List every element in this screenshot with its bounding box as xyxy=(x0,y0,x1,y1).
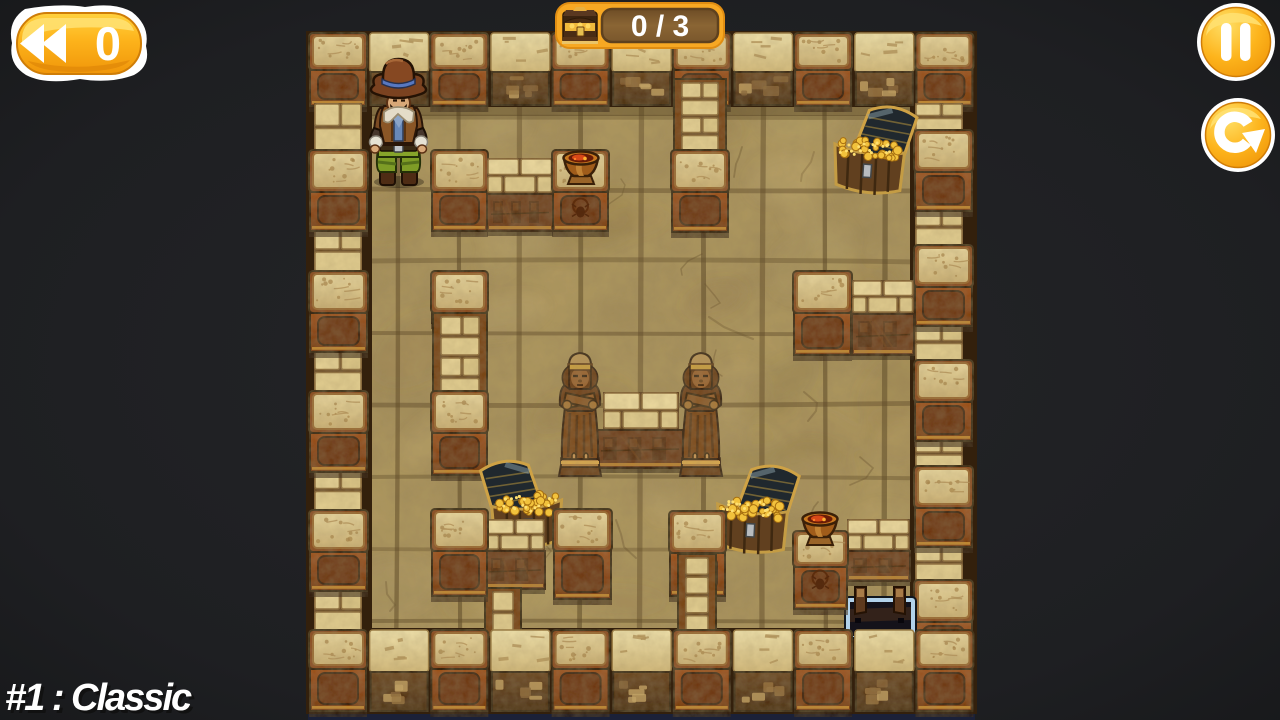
svg-text:#1 : Classic: #1 : Classic xyxy=(5,677,192,719)
svg-text:0 / 3: 0 / 3 xyxy=(631,10,689,43)
svg-text:0: 0 xyxy=(95,17,121,70)
